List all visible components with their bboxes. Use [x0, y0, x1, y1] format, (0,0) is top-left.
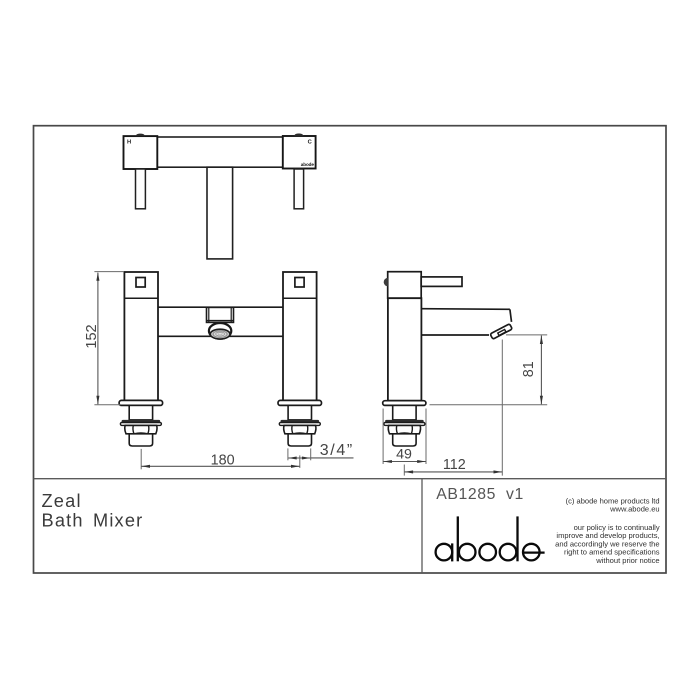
svg-text:152: 152: [84, 324, 100, 348]
svg-text:112: 112: [443, 457, 466, 473]
svg-text:www.abode.eu: www.abode.eu: [609, 505, 660, 514]
svg-text:H: H: [127, 140, 131, 146]
svg-text:49: 49: [396, 447, 412, 463]
svg-text:AB1285 v1: AB1285 v1: [436, 486, 524, 503]
svg-text:Zeal: Zeal: [42, 491, 82, 511]
svg-text:3/4”: 3/4”: [320, 442, 354, 459]
svg-text:81: 81: [521, 361, 537, 377]
svg-text:Bath Mixer: Bath Mixer: [42, 511, 144, 531]
svg-text:180: 180: [211, 452, 235, 468]
svg-text:abode: abode: [301, 162, 315, 167]
svg-text:without prior notice: without prior notice: [595, 556, 659, 565]
